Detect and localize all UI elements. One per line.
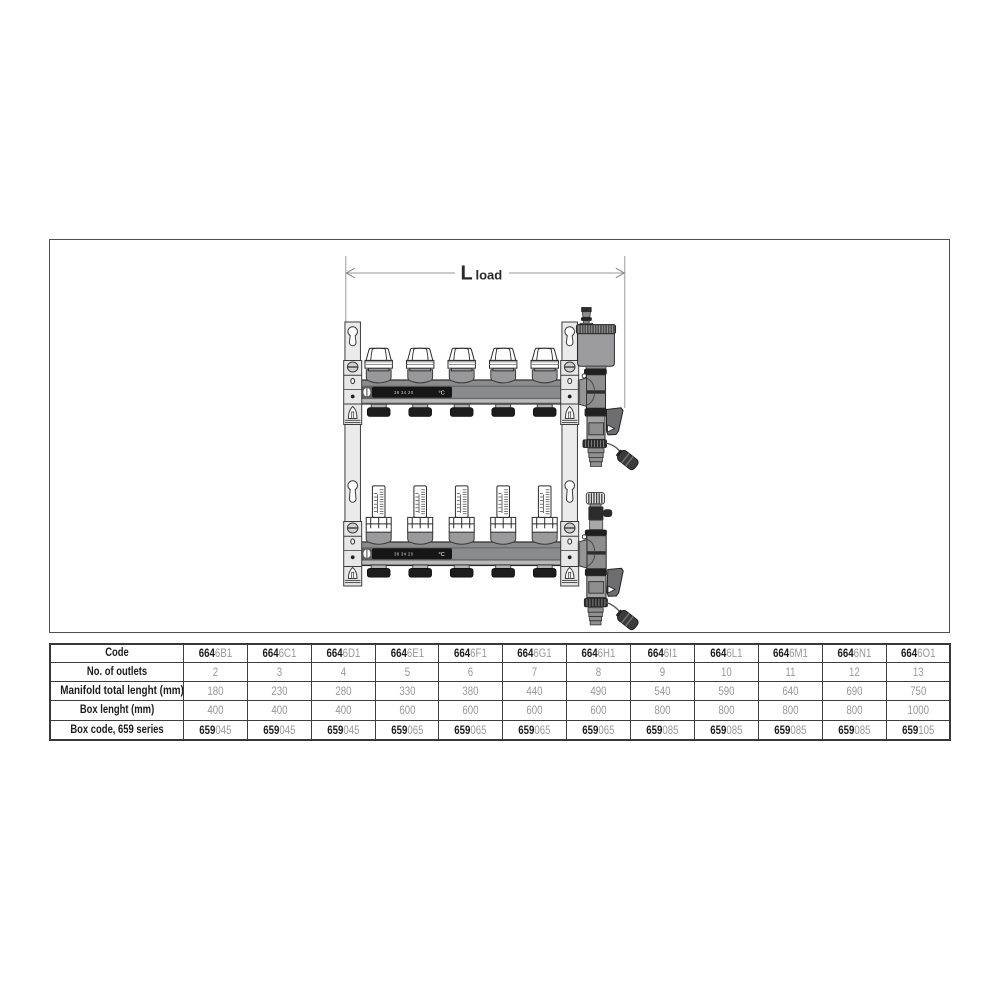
svg-text:38 34 20: 38 34 20: [394, 390, 414, 395]
svg-text:°C: °C: [439, 552, 445, 558]
svg-text:38 34 20: 38 34 20: [394, 551, 414, 556]
svg-text:load: load: [476, 267, 503, 282]
svg-text:°C: °C: [439, 391, 445, 397]
svg-text:L: L: [461, 263, 473, 285]
